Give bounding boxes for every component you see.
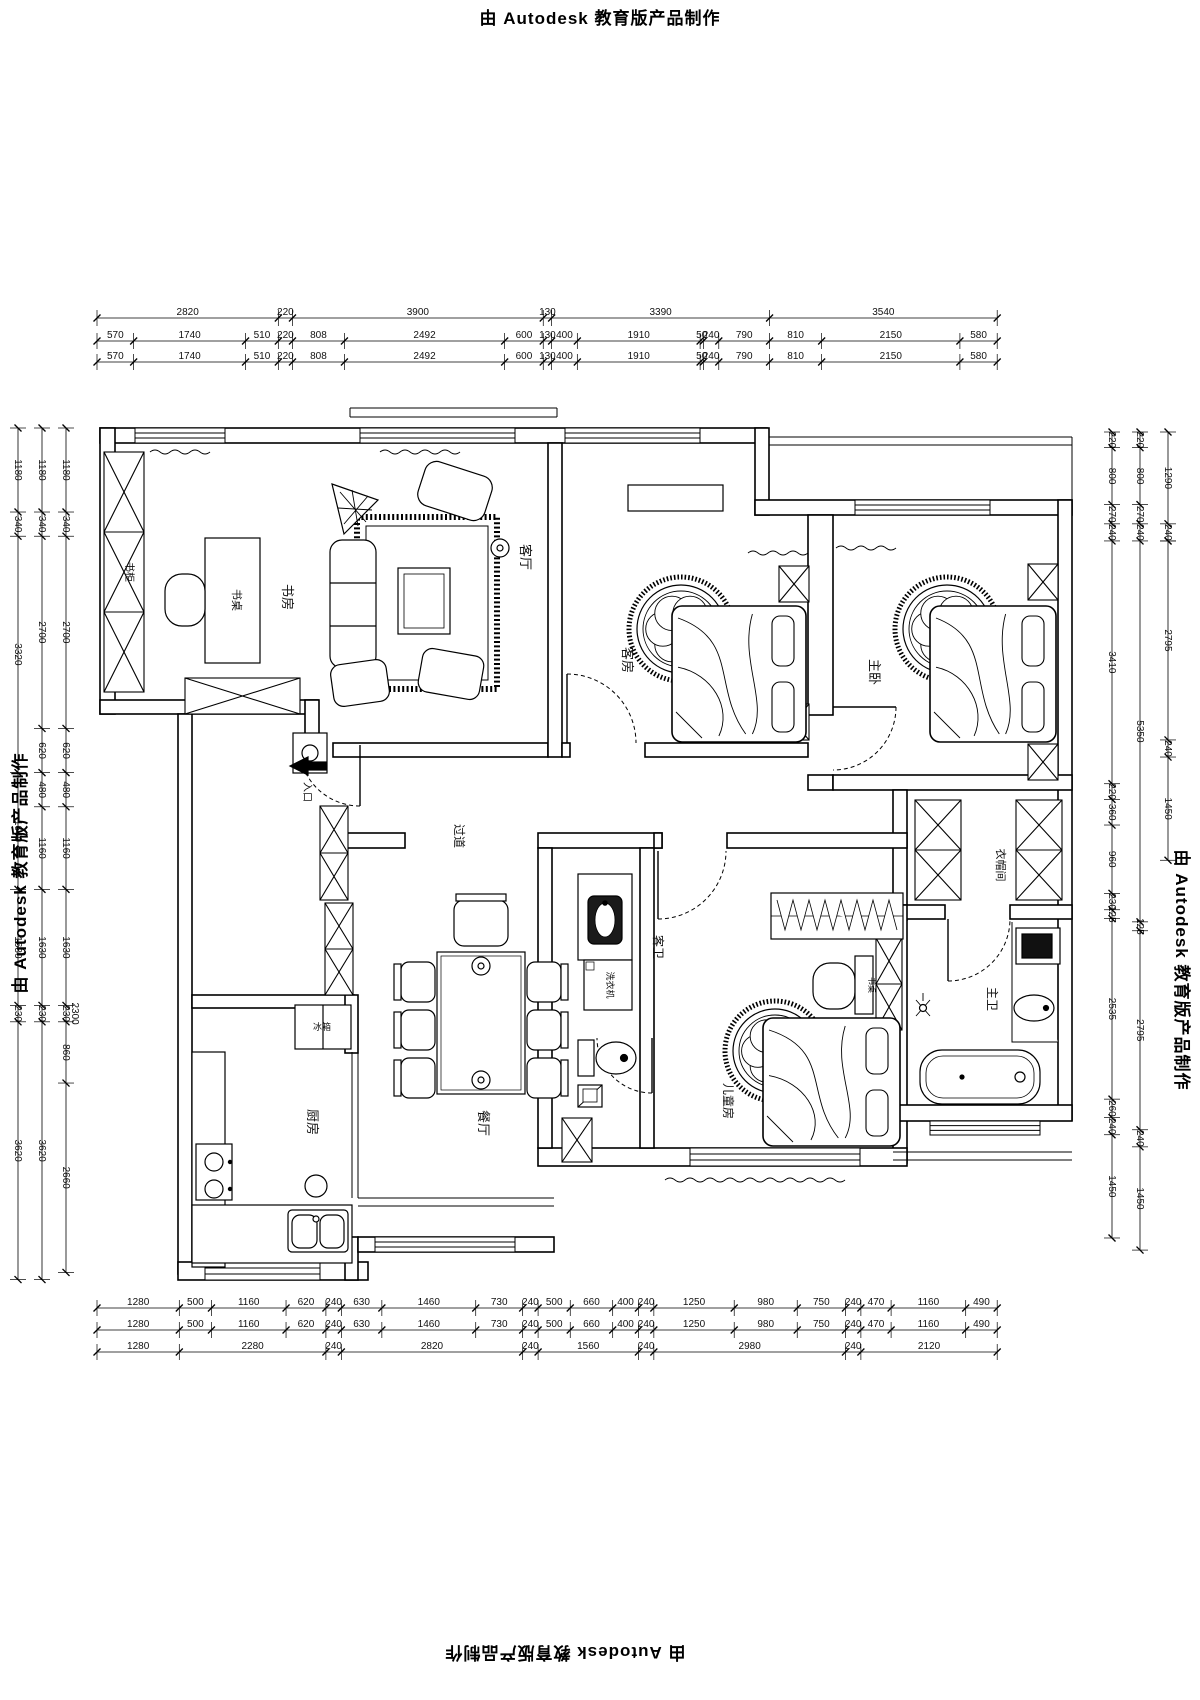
label-kitchen: 厨房 — [305, 1109, 320, 1135]
svg-text:270: 270 — [1134, 506, 1145, 523]
svg-text:240: 240 — [845, 1341, 862, 1352]
svg-text:620: 620 — [36, 742, 47, 759]
label-living: 客厅 — [518, 544, 533, 570]
svg-text:400: 400 — [617, 1297, 634, 1308]
svg-text:500: 500 — [546, 1297, 563, 1308]
svg-text:570: 570 — [107, 351, 124, 362]
svg-text:360: 360 — [1106, 804, 1117, 821]
study-desk — [165, 538, 260, 663]
svg-text:240: 240 — [325, 1297, 342, 1308]
label-children: 儿童房 — [721, 1083, 736, 1119]
label-dining: 餐厅 — [476, 1110, 491, 1136]
svg-text:1910: 1910 — [628, 330, 651, 341]
svg-text:790: 790 — [736, 330, 753, 341]
svg-text:1290: 1290 — [1162, 467, 1173, 490]
dining-chair — [401, 1010, 435, 1050]
svg-text:620: 620 — [60, 742, 71, 759]
svg-text:3620: 3620 — [36, 1140, 47, 1163]
svg-text:2280: 2280 — [241, 1341, 264, 1352]
svg-text:2820: 2820 — [177, 307, 200, 318]
svg-text:240: 240 — [638, 1341, 655, 1352]
svg-text:480: 480 — [36, 781, 47, 798]
dining-chair — [401, 962, 435, 1002]
svg-text:1630: 1630 — [36, 936, 47, 959]
tv-cabinet — [628, 485, 723, 511]
svg-text:1160: 1160 — [60, 837, 71, 859]
svg-text:980: 980 — [757, 1319, 774, 1330]
svg-text:500: 500 — [187, 1319, 204, 1330]
svg-text:620: 620 — [298, 1319, 315, 1330]
svg-text:470: 470 — [868, 1297, 885, 1308]
svg-text:240: 240 — [638, 1297, 655, 1308]
svg-text:220: 220 — [277, 351, 294, 362]
label-guest-bath: 客卫 — [651, 935, 666, 959]
svg-text:500: 500 — [187, 1297, 204, 1308]
label-closet: 衣帽间 — [994, 849, 1008, 882]
svg-text:1160: 1160 — [918, 1297, 940, 1308]
svg-text:960: 960 — [1106, 851, 1117, 868]
svg-text:2795: 2795 — [1134, 1019, 1145, 1042]
autodesk-watermark-left: 由 Autodesk 教育版产品制作 — [6, 638, 31, 1108]
svg-text:1450: 1450 — [1106, 1175, 1117, 1198]
svg-text:1160: 1160 — [238, 1297, 260, 1308]
svg-text:240: 240 — [1134, 1130, 1145, 1147]
svg-text:3410: 3410 — [1106, 651, 1117, 674]
dining-chair — [527, 962, 561, 1002]
svg-text:1460: 1460 — [418, 1297, 441, 1308]
autodesk-watermark-bottom: 由 Autodesk 教育版产品制作 — [0, 1642, 1130, 1667]
svg-text:220: 220 — [1106, 783, 1117, 800]
svg-text:1910: 1910 — [628, 351, 651, 362]
kitchen-fixtures — [192, 1005, 358, 1267]
label-guest: 客房 — [620, 647, 635, 673]
children-chair — [813, 963, 855, 1009]
svg-text:2120: 2120 — [918, 1341, 941, 1352]
svg-text:340: 340 — [36, 516, 47, 533]
svg-text:240: 240 — [522, 1319, 539, 1330]
armchair — [329, 658, 390, 707]
master-bath-fixtures — [916, 922, 1060, 1104]
svg-text:1740: 1740 — [178, 351, 201, 362]
svg-text:2150: 2150 — [880, 330, 903, 341]
svg-text:1450: 1450 — [1134, 1187, 1145, 1210]
svg-text:790: 790 — [736, 351, 753, 362]
floor-plan-svg: 2820220390013033903540570174051022080824… — [0, 0, 1200, 1700]
study-chair — [165, 574, 205, 626]
svg-text:630: 630 — [353, 1297, 370, 1308]
svg-text:240: 240 — [1162, 524, 1173, 541]
svg-text:220: 220 — [277, 330, 294, 341]
svg-text:2492: 2492 — [413, 351, 436, 362]
svg-text:510: 510 — [254, 351, 271, 362]
svg-text:230: 230 — [36, 1005, 47, 1022]
svg-text:2700: 2700 — [60, 621, 71, 644]
svg-text:750: 750 — [813, 1297, 830, 1308]
svg-text:1280: 1280 — [127, 1297, 150, 1308]
svg-text:240: 240 — [703, 330, 720, 341]
svg-text:580: 580 — [970, 330, 987, 341]
armchair — [415, 458, 496, 523]
svg-text:5350: 5350 — [1134, 720, 1145, 743]
svg-text:1740: 1740 — [178, 330, 201, 341]
svg-text:1460: 1460 — [418, 1319, 441, 1330]
svg-text:240: 240 — [522, 1341, 539, 1352]
svg-text:400: 400 — [556, 351, 573, 362]
svg-text:510: 510 — [254, 330, 271, 341]
svg-text:500: 500 — [546, 1319, 563, 1330]
svg-text:240: 240 — [638, 1319, 655, 1330]
entrance-items — [290, 733, 327, 775]
svg-text:2660: 2660 — [60, 1167, 71, 1190]
label-study-desk: 书桌 — [230, 589, 243, 611]
svg-text:860: 860 — [60, 1044, 71, 1061]
svg-text:220: 220 — [1106, 431, 1117, 448]
svg-text:2150: 2150 — [880, 351, 903, 362]
svg-text:808: 808 — [310, 351, 327, 362]
svg-text:580: 580 — [970, 351, 987, 362]
svg-text:1160: 1160 — [238, 1319, 260, 1330]
svg-text:3390: 3390 — [649, 307, 672, 318]
label-hallway: 过道 — [452, 824, 466, 848]
living-room-set — [329, 458, 509, 707]
svg-text:3540: 3540 — [872, 307, 895, 318]
svg-text:800: 800 — [1106, 468, 1117, 485]
svg-text:980: 980 — [757, 1297, 774, 1308]
svg-text:340: 340 — [60, 516, 71, 533]
svg-text:2492: 2492 — [413, 330, 436, 341]
svg-text:240: 240 — [1106, 524, 1117, 541]
svg-text:240: 240 — [845, 1319, 862, 1330]
label-fridge: 冰箱 — [313, 1021, 331, 1032]
svg-text:490: 490 — [973, 1319, 990, 1330]
svg-text:1560: 1560 — [577, 1341, 600, 1352]
label-master-bath: 主卫 — [985, 987, 999, 1011]
label-bookcase: 书柜 — [123, 562, 136, 582]
svg-text:3900: 3900 — [407, 307, 430, 318]
svg-text:600: 600 — [516, 330, 533, 341]
svg-text:240: 240 — [325, 1319, 342, 1330]
svg-text:800: 800 — [1134, 468, 1145, 485]
svg-text:1160: 1160 — [918, 1319, 940, 1330]
svg-text:730: 730 — [491, 1319, 508, 1330]
autodesk-watermark-top: 由 Autodesk 教育版产品制作 — [0, 4, 1200, 29]
dining-chair — [401, 1058, 435, 1098]
svg-text:240: 240 — [325, 1341, 342, 1352]
label-washer: 洗衣机 — [605, 971, 616, 998]
svg-text:240: 240 — [522, 1297, 539, 1308]
svg-text:1180: 1180 — [36, 459, 47, 481]
svg-text:1250: 1250 — [683, 1297, 706, 1308]
svg-text:1180: 1180 — [60, 459, 71, 481]
svg-text:630: 630 — [353, 1319, 370, 1330]
svg-text:240: 240 — [1106, 1118, 1117, 1135]
svg-text:570: 570 — [107, 330, 124, 341]
svg-text:730: 730 — [491, 1297, 508, 1308]
dining-chair — [454, 900, 508, 946]
svg-text:620: 620 — [298, 1297, 315, 1308]
svg-text:1630: 1630 — [60, 936, 71, 959]
pot — [305, 1175, 327, 1197]
svg-text:400: 400 — [556, 330, 573, 341]
svg-text:400: 400 — [617, 1319, 634, 1330]
sofa — [330, 540, 376, 668]
svg-text:125: 125 — [1134, 918, 1145, 935]
svg-text:220: 220 — [277, 307, 294, 318]
toilet-tank — [578, 1040, 594, 1076]
svg-text:660: 660 — [583, 1319, 600, 1330]
toilet — [596, 1042, 636, 1074]
autodesk-watermark-right: 由 Autodesk 教育版产品制作 — [1171, 700, 1196, 1240]
svg-text:490: 490 — [973, 1297, 990, 1308]
svg-text:125: 125 — [1106, 906, 1117, 923]
svg-text:750: 750 — [813, 1319, 830, 1330]
svg-text:810: 810 — [787, 330, 804, 341]
svg-text:240: 240 — [703, 351, 720, 362]
svg-text:3620: 3620 — [12, 1140, 23, 1163]
svg-text:1280: 1280 — [127, 1341, 150, 1352]
svg-text:600: 600 — [516, 351, 533, 362]
svg-text:270: 270 — [1106, 506, 1117, 523]
svg-text:480: 480 — [60, 781, 71, 798]
svg-text:2700: 2700 — [36, 621, 47, 644]
svg-text:1160: 1160 — [36, 837, 47, 859]
svg-text:2820: 2820 — [421, 1341, 444, 1352]
svg-text:808: 808 — [310, 330, 327, 341]
svg-text:470: 470 — [868, 1319, 885, 1330]
svg-text:260: 260 — [1106, 1100, 1117, 1117]
dining-chair — [527, 1010, 561, 1050]
svg-text:1280: 1280 — [127, 1319, 150, 1330]
svg-text:2795: 2795 — [1162, 629, 1173, 652]
svg-text:240: 240 — [845, 1297, 862, 1308]
label-children-desk: 书桌 — [867, 977, 877, 993]
svg-text:340: 340 — [12, 516, 23, 533]
svg-text:810: 810 — [787, 351, 804, 362]
label-study: 书房 — [280, 584, 295, 610]
svg-text:2535: 2535 — [1106, 998, 1117, 1021]
svg-text:220: 220 — [1134, 431, 1145, 448]
svg-text:1250: 1250 — [683, 1319, 706, 1330]
label-master: 主卧 — [867, 659, 882, 685]
label-entrance: 入口 — [301, 782, 312, 802]
svg-text:2980: 2980 — [739, 1341, 762, 1352]
svg-text:660: 660 — [583, 1297, 600, 1308]
svg-text:240: 240 — [1134, 524, 1145, 541]
floorplan-page: 由 Autodesk 教育版产品制作 由 Autodesk 教育版产品制作 由 … — [0, 0, 1200, 1700]
svg-text:1180: 1180 — [12, 459, 23, 481]
dining-chair — [527, 1058, 561, 1098]
